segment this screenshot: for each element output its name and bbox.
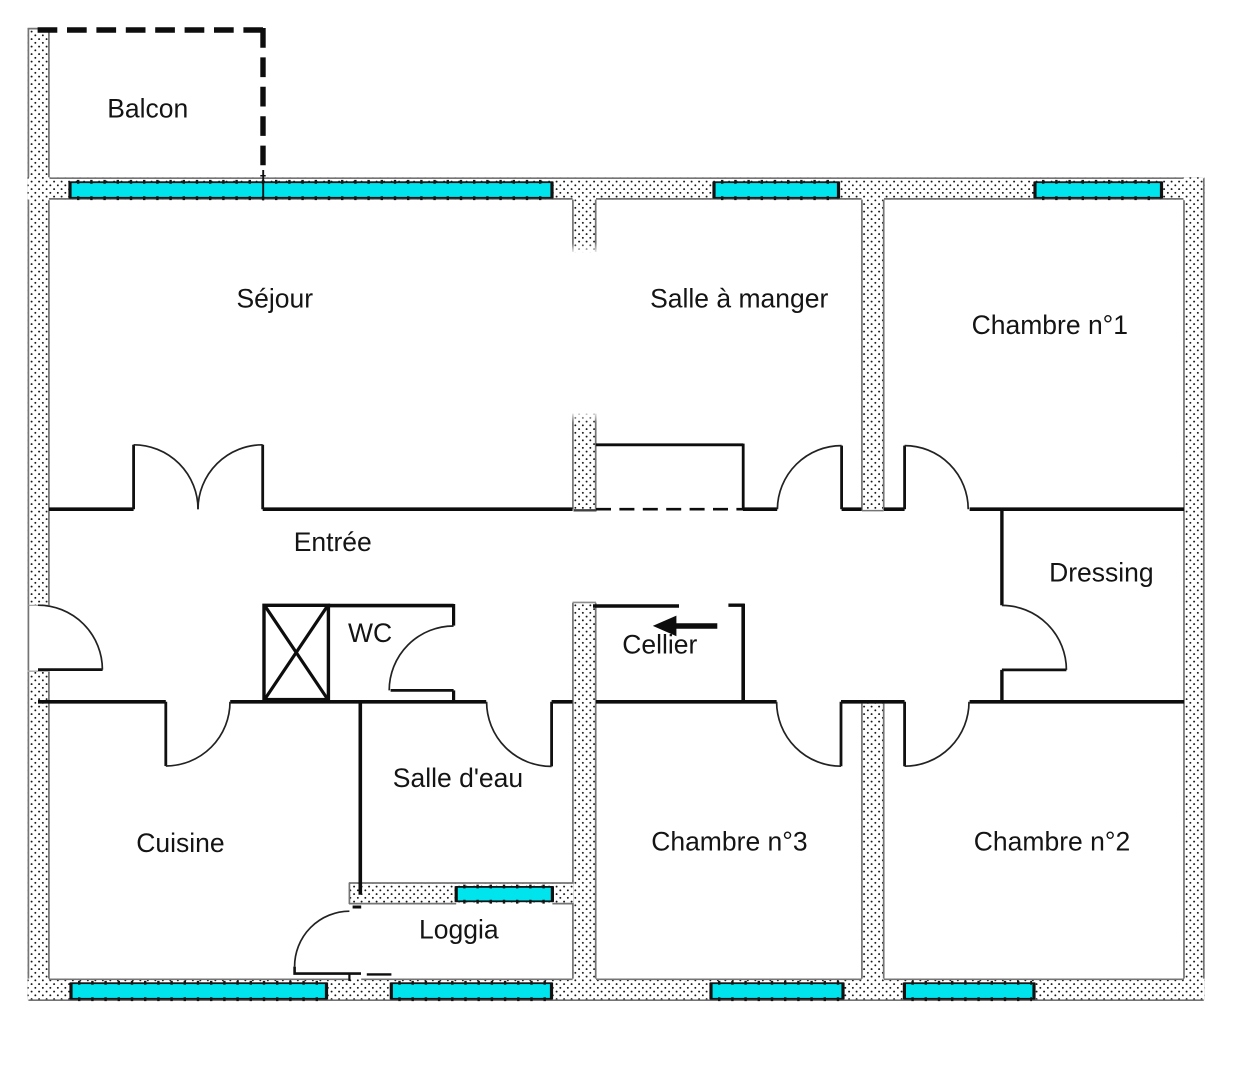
svg-text:Salle à manger: Salle à manger — [650, 284, 828, 314]
svg-text:Entrée: Entrée — [294, 527, 372, 557]
svg-text:Séjour: Séjour — [237, 284, 314, 314]
svg-text:Chambre n°2: Chambre n°2 — [974, 827, 1130, 857]
svg-text:Dressing: Dressing — [1049, 558, 1154, 588]
svg-text:Loggia: Loggia — [419, 915, 499, 945]
svg-text:Chambre n°3: Chambre n°3 — [651, 827, 807, 857]
svg-text:Chambre n°1: Chambre n°1 — [972, 310, 1128, 340]
svg-text:WC: WC — [348, 618, 392, 648]
svg-text:Salle d'eau: Salle d'eau — [393, 763, 523, 793]
svg-text:Balcon: Balcon — [107, 94, 188, 124]
svg-text:Cellier: Cellier — [622, 630, 697, 660]
svg-text:Cuisine: Cuisine — [136, 828, 224, 858]
